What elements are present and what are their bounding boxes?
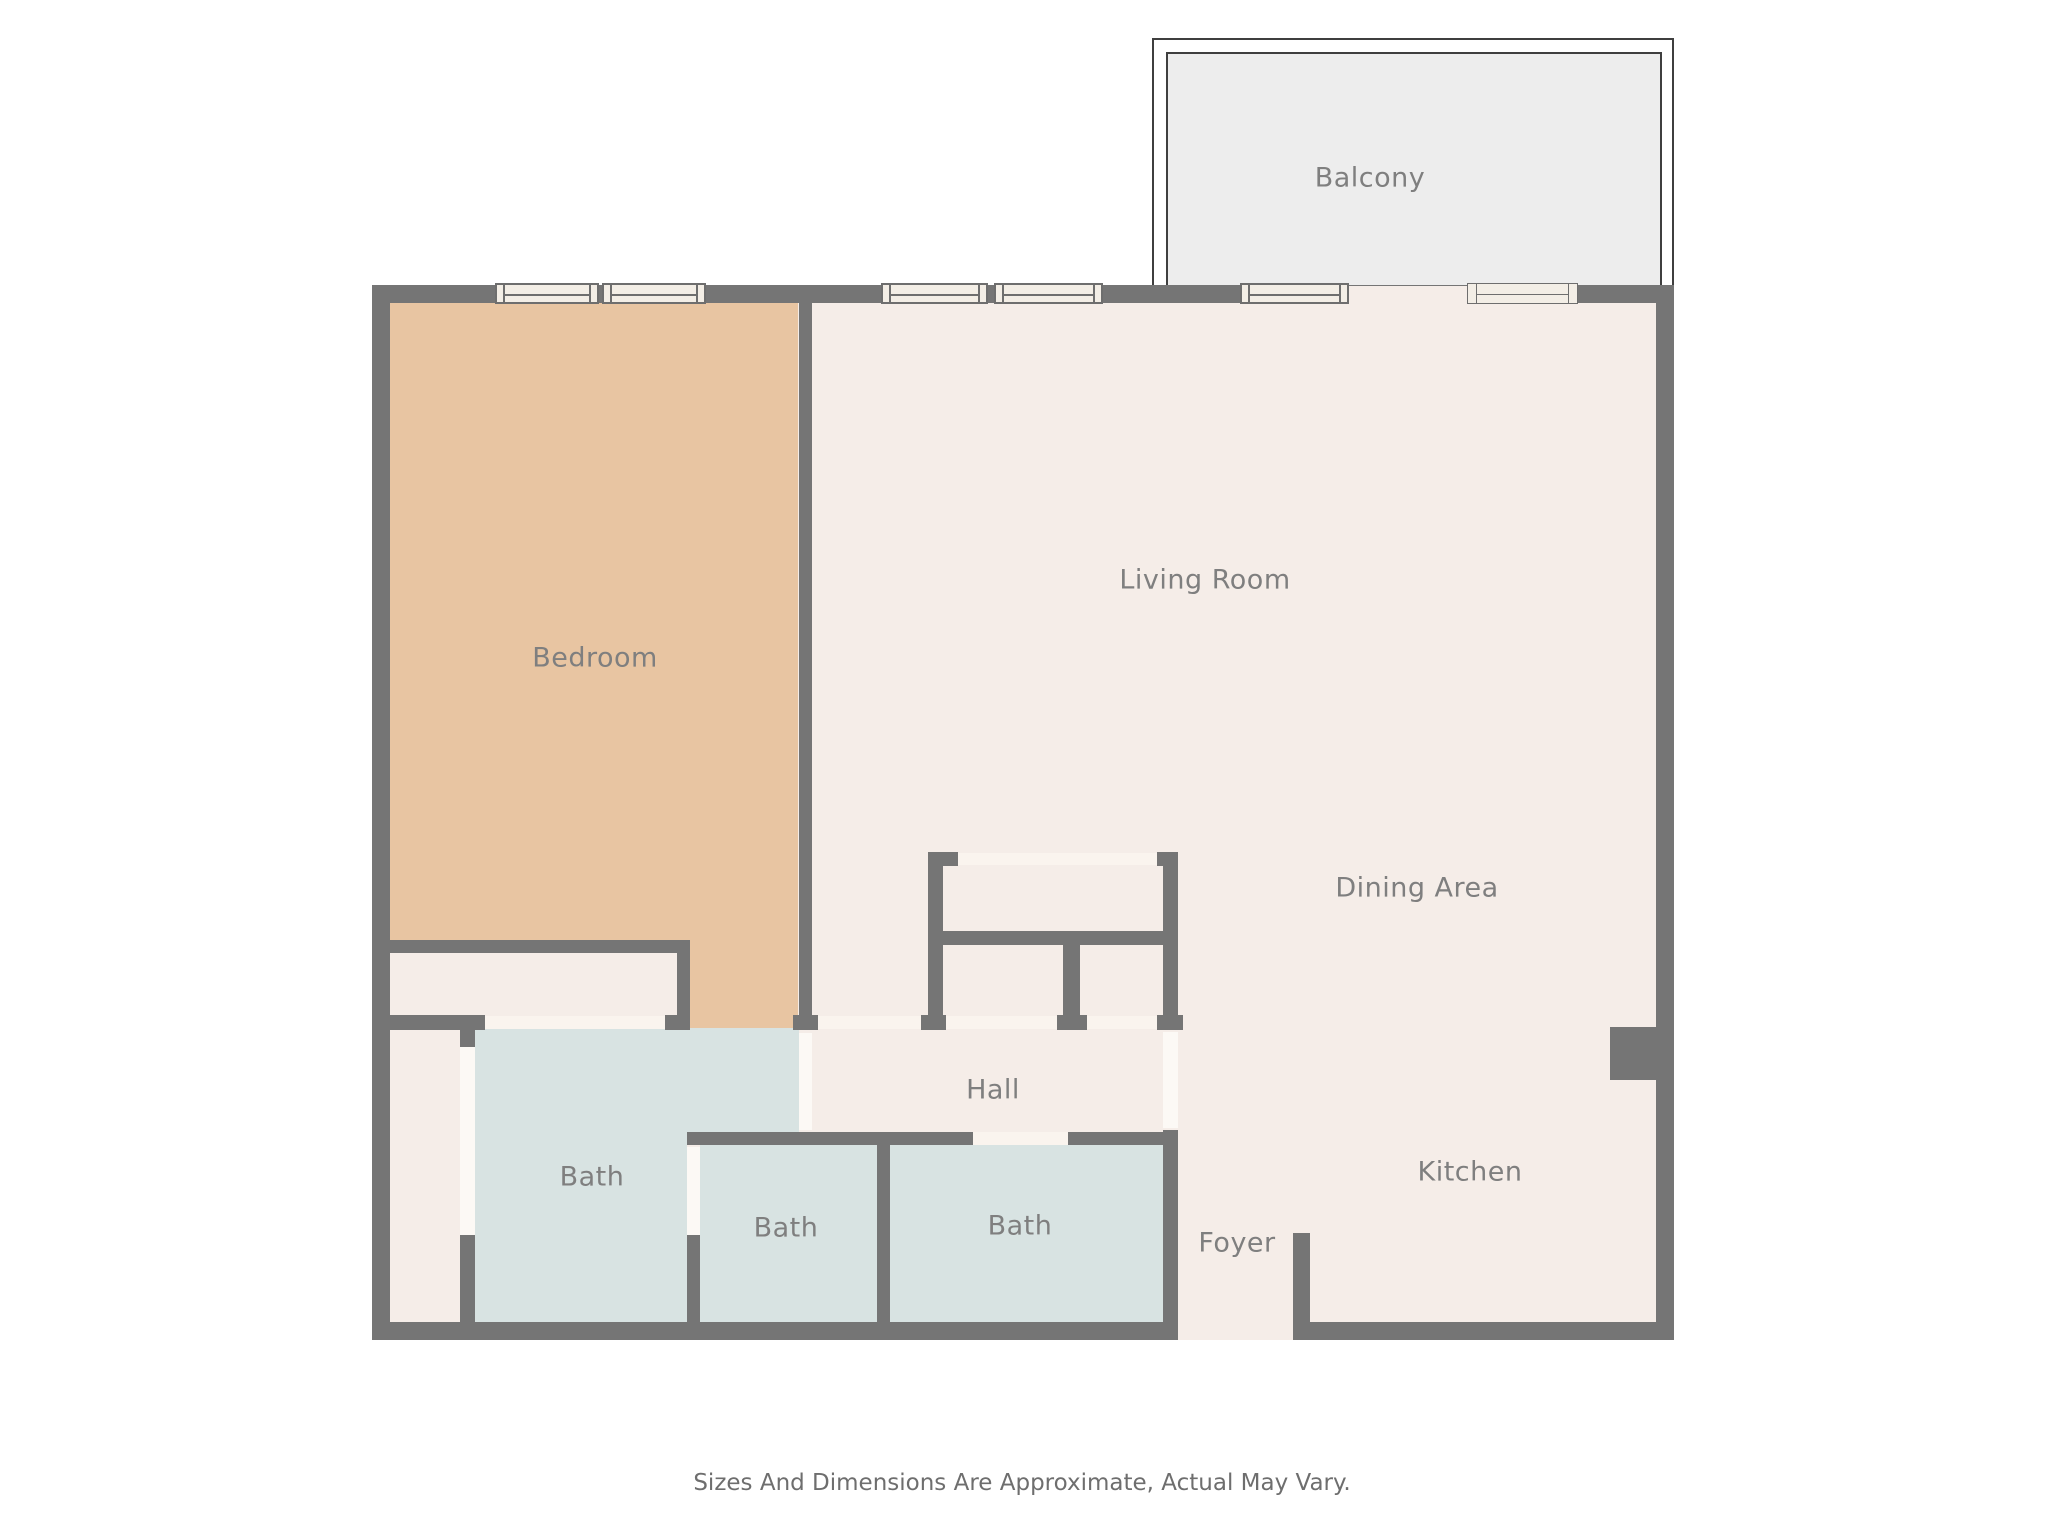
opening-hall-west (818, 1016, 921, 1029)
wall-hallunit-mid-foot (1057, 1015, 1087, 1030)
opening-hallunit-top (958, 853, 1157, 865)
wall-outer-left (372, 285, 390, 1340)
bedroom-window-2 (602, 283, 706, 304)
label-kitchen: Kitchen (1418, 1157, 1523, 1188)
window-post-icon (881, 283, 891, 304)
opening-bath1-bath2-door (687, 1147, 700, 1235)
label-bath-1: Bath (560, 1162, 625, 1193)
label-bedroom: Bedroom (532, 643, 658, 674)
opening-hallunit-bottom-1 (946, 1016, 1057, 1029)
wall-outer-right (1656, 285, 1674, 1340)
wall-bath1-left-stub (460, 1030, 475, 1047)
wall-bath3-top (1068, 1132, 1178, 1145)
window-post-icon (696, 283, 706, 304)
label-bath-3: Bath (988, 1211, 1053, 1242)
window-post-icon (1093, 283, 1103, 304)
wall-hallunit-left-foot (921, 1015, 946, 1030)
window-post-icon (602, 283, 612, 304)
living-room-window-1 (881, 283, 988, 304)
label-foyer: Foyer (1198, 1228, 1275, 1259)
bedroom-window-1 (495, 283, 599, 304)
opening-closet-door (485, 1016, 665, 1029)
wall-bedroom-right-foot (793, 1015, 818, 1030)
wall-foyer-left (1163, 1130, 1178, 1322)
window-post-icon (495, 283, 505, 304)
label-hall: Hall (966, 1075, 1020, 1106)
label-bath-2: Bath (754, 1213, 819, 1244)
room-bath1-fill-lower (475, 1132, 687, 1322)
wall-kitchen-stub (1610, 1027, 1656, 1080)
opening-balcony-door (1349, 286, 1468, 303)
wall-bath1-bath2-divider (687, 1235, 700, 1322)
wall-hallunit-mid-vert (1063, 945, 1080, 1015)
wall-hallunit-right-foot (1157, 1015, 1183, 1030)
wall-closet-bottom (390, 1015, 485, 1030)
wall-bedroom-right (799, 303, 812, 1030)
wall-bath2-bath3-divider (877, 1145, 890, 1322)
window-post-icon (589, 283, 599, 304)
floor-plan: Balcony Bedroom Living Room Dining Area … (0, 0, 2048, 1536)
wall-hallunit-topleft-stub (928, 852, 958, 866)
label-balcony: Balcony (1315, 163, 1426, 194)
room-bedroom-extension (690, 940, 798, 1028)
window-post-icon (1568, 283, 1578, 304)
opening-entry-door (1178, 1322, 1293, 1340)
room-bedroom-fill (390, 303, 798, 940)
window-post-icon (1240, 283, 1250, 304)
label-living-room: Living Room (1119, 565, 1290, 596)
living-room-window-2 (994, 283, 1103, 304)
disclaimer-text: Sizes And Dimensions Are Approximate, Ac… (693, 1470, 1350, 1496)
wall-outer-bottom (372, 1322, 1674, 1340)
opening-bath1-hall-door (799, 1033, 812, 1130)
wall-closet-top (390, 940, 690, 953)
wall-closet-corner (665, 1015, 690, 1030)
wall-bath2-top (687, 1132, 973, 1145)
opening-hall-kitchen-door (1163, 1032, 1178, 1128)
wall-foyer-right-stub (1293, 1233, 1310, 1322)
room-bath1-fill-upper (475, 1028, 799, 1132)
window-post-icon (1467, 283, 1477, 304)
wall-hallunit-middle (928, 931, 1178, 945)
opening-bath3-door (973, 1132, 1068, 1145)
living-room-window-3 (1240, 283, 1349, 304)
label-dining-area: Dining Area (1335, 873, 1498, 904)
opening-hallunit-bottom-2 (1087, 1016, 1157, 1029)
opening-bath1-left (460, 1047, 475, 1235)
window-post-icon (978, 283, 988, 304)
balcony-window (1468, 283, 1577, 304)
wall-bath1-left-lower (460, 1235, 475, 1322)
window-post-icon (994, 283, 1004, 304)
window-post-icon (1339, 283, 1349, 304)
